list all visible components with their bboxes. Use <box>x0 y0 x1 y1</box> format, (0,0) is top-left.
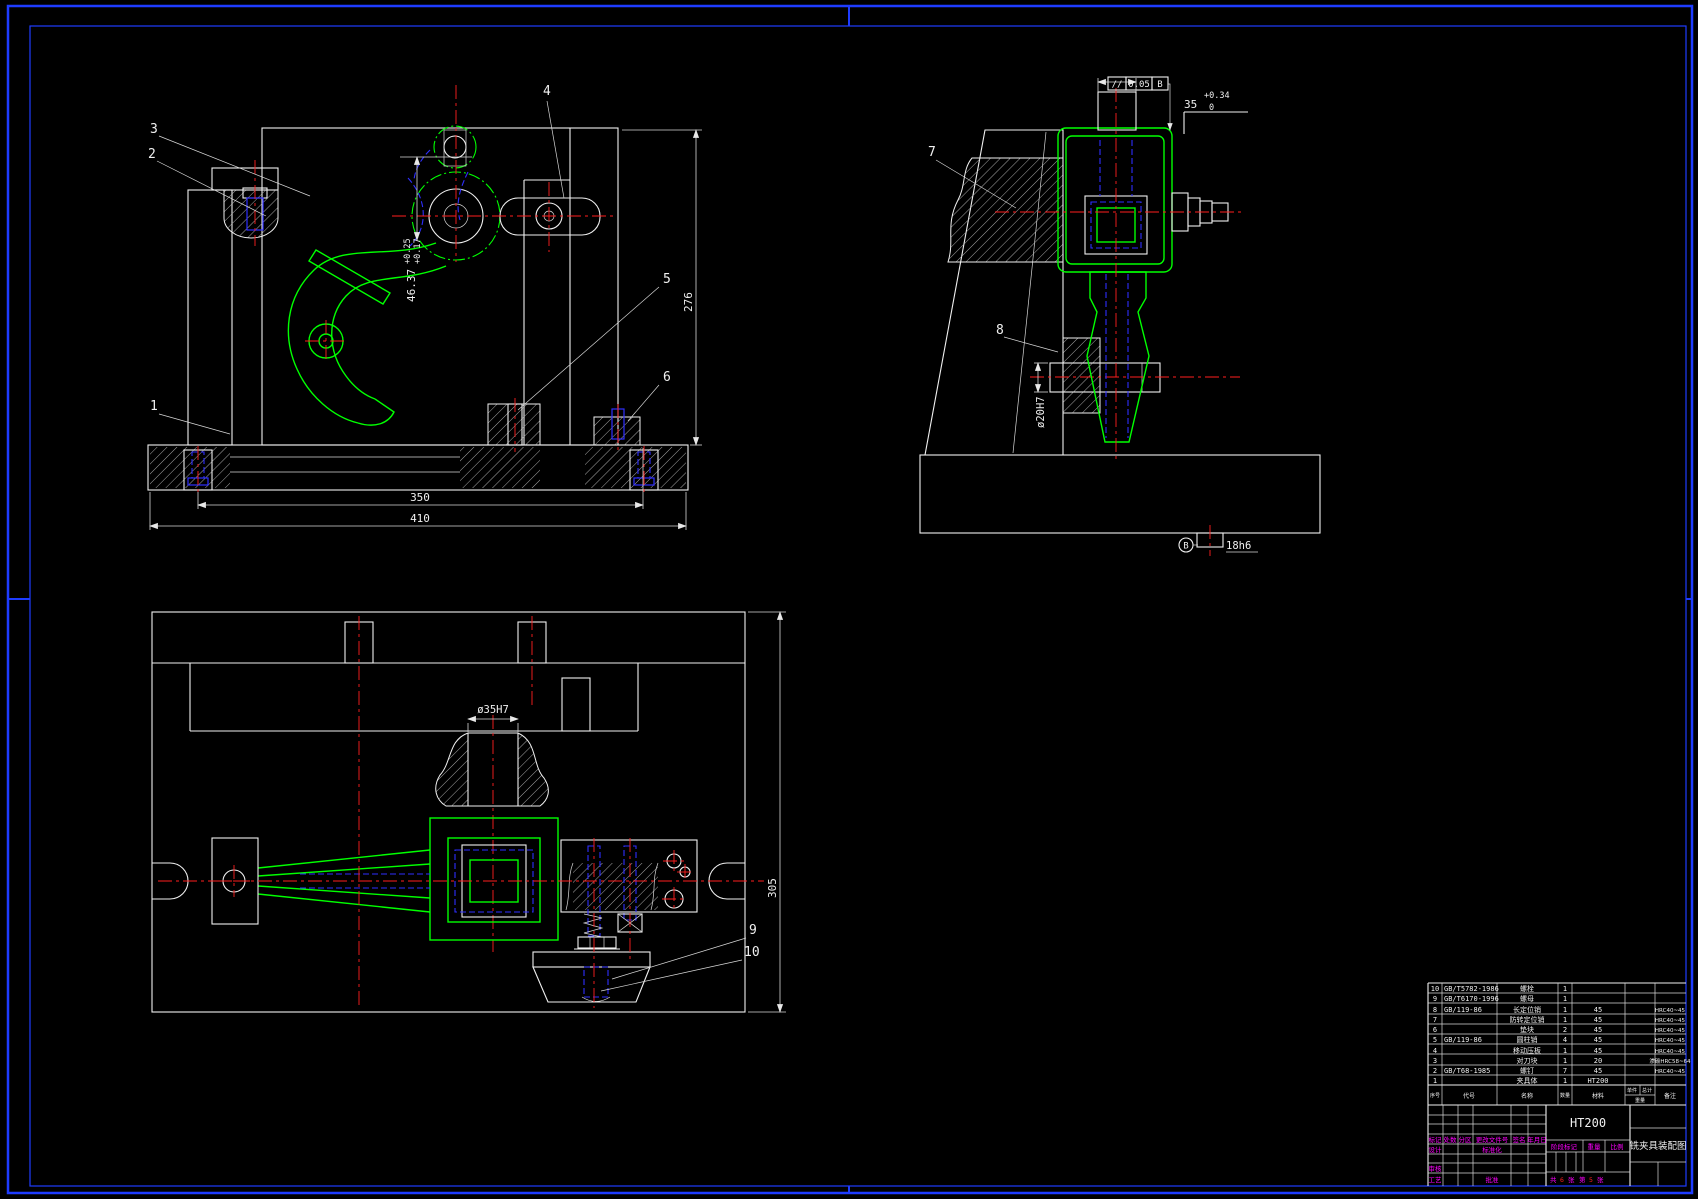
support-block-left <box>488 398 540 452</box>
part-no: 9 <box>1433 995 1437 1003</box>
part-no: 3 <box>1433 1057 1437 1065</box>
side-base <box>920 455 1320 556</box>
label-stage: 阶段标记 <box>1551 1142 1578 1151</box>
balloon-7: 7 <box>928 145 936 160</box>
col-wt-unit: 单件 <box>1627 1087 1637 1094</box>
parts-list: 序号 代号 名称 数量 材料 单件 总计 重量 备注 10GB/T5782-19… <box>1428 983 1691 1186</box>
balloon-1: 1 <box>150 399 158 414</box>
label-standard: 标准化 <box>1482 1145 1502 1154</box>
part-name: 长定位销 <box>1513 1005 1541 1014</box>
balloon-4: 4 <box>543 84 551 99</box>
balloon-8: 8 <box>996 323 1004 338</box>
part-row-8: 8GB/119-86长定位销145HRC40~45 <box>1433 1005 1686 1014</box>
part-name: 螺栓 <box>1520 984 1534 993</box>
clamp-assembly-plan <box>212 818 558 940</box>
sheet-unit-2: 张 <box>1597 1175 1604 1184</box>
cad-canvas: 46.37 +0.25 +0.17 276 350 410 3 2 <box>0 0 1698 1199</box>
tool-setting-block <box>188 160 278 445</box>
sheet-border-frame <box>8 6 1692 1193</box>
label-sign: 签名 <box>1513 1135 1526 1144</box>
part-row-9: 9GB/T6170-1996螺母1 <box>1433 994 1567 1003</box>
part-row-7: 7防转定位销145HRC40~45 <box>1433 1015 1686 1024</box>
col-code: 代号 <box>1463 1092 1475 1100</box>
dim-height-276: 276 <box>682 292 695 312</box>
label-approve: 批准 <box>1486 1175 1500 1184</box>
part-material: 45 <box>1594 1047 1602 1055</box>
part-name: 螺母 <box>1520 994 1534 1003</box>
engineering-drawing: 46.37 +0.25 +0.17 276 350 410 3 2 <box>0 0 1698 1199</box>
part-material: 45 <box>1594 1026 1602 1034</box>
side-view-annotations: // 0.05 B 35 +0.34 0 ø20H7 18h6 B <box>928 77 1258 552</box>
col-qty: 数量 <box>1560 1092 1570 1099</box>
part-code: GB/T5782-1986 <box>1444 985 1499 993</box>
dim-slot-lower-tol: 0 <box>1209 103 1214 113</box>
part-code: GB/T68-1985 <box>1444 1067 1490 1075</box>
part-remark: HRC40~45 <box>1655 1069 1686 1075</box>
part-qty: 1 <box>1563 1077 1567 1085</box>
part-qty: 4 <box>1563 1036 1567 1044</box>
part-no: 2 <box>1433 1067 1437 1075</box>
sheet-count: 共 6 张 第 5 张 <box>1550 1175 1604 1184</box>
plan-view: ø35H7 305 9 10 <box>152 612 786 1012</box>
part-row-2: 2GB/T68-1985螺钉745HRC40~45 <box>1433 1066 1686 1075</box>
col-wt-total: 总计 <box>1642 1087 1652 1094</box>
plan-base-outline <box>152 612 745 1012</box>
part-qty: 1 <box>1563 1016 1567 1024</box>
dim-depth-305: 305 <box>766 878 779 898</box>
dim-width-350: 350 <box>410 491 430 504</box>
part-qty: 7 <box>1563 1067 1567 1075</box>
part-row-1: 1夹具体1HT200 <box>1433 1076 1609 1085</box>
side-view: // 0.05 B 35 +0.34 0 ø20H7 18h6 B <box>920 77 1320 556</box>
part-qty: 2 <box>1563 1026 1567 1034</box>
dim-bore-upper-tol: +0.25 <box>403 238 413 264</box>
part-no: 4 <box>1433 1047 1437 1055</box>
sheet-unit-1: 张 <box>1568 1175 1575 1184</box>
balloon-9: 9 <box>749 923 757 938</box>
part-no: 1 <box>1433 1077 1437 1085</box>
side-column <box>925 130 1100 455</box>
dim-bore: 46.37 <box>405 269 418 302</box>
part-no: 5 <box>1433 1036 1437 1044</box>
col-remark: 备注 <box>1664 1092 1676 1100</box>
part-qty: 1 <box>1563 1047 1567 1055</box>
dim-width-410: 410 <box>410 512 430 525</box>
locating-pin <box>1030 363 1240 392</box>
part-material: 45 <box>1594 1016 1602 1024</box>
part-material: 45 <box>1594 1036 1602 1044</box>
part-name: 防转定位销 <box>1510 1015 1545 1024</box>
clamp-lever-assembly <box>288 85 615 425</box>
label-change-no: 更改文件号 <box>1476 1135 1509 1144</box>
front-view: 46.37 +0.25 +0.17 276 350 410 3 2 <box>148 84 702 530</box>
datum-b-symbol: B <box>1183 542 1188 552</box>
part-code: GB/T6170-1996 <box>1444 995 1499 1003</box>
dim-key-18h6: 18h6 <box>1226 540 1251 552</box>
part-remark: HRC40~45 <box>1655 1028 1686 1034</box>
part-name: 移动压板 <box>1513 1046 1541 1055</box>
col-name: 名称 <box>1521 1092 1533 1100</box>
balloon-2: 2 <box>148 147 156 162</box>
clamp-body-side <box>995 88 1248 462</box>
part-remark: HRC40~45 <box>1655 1018 1686 1024</box>
gdt-parallel-symbol: // <box>1112 80 1123 90</box>
sheet-total-count: 6 <box>1560 1176 1564 1184</box>
balloon-5: 5 <box>663 272 671 287</box>
part-code: GB/119-86 <box>1444 1006 1482 1014</box>
part-material: HT200 <box>1587 1077 1608 1085</box>
part-row-6: 6垫块245HRC40~45 <box>1433 1025 1686 1034</box>
sheet-label-page: 第 <box>1579 1175 1586 1184</box>
col-no: 序号 <box>1430 1092 1440 1099</box>
dim-bore-lower-tol: +0.17 <box>413 238 423 264</box>
part-name: 螺钉 <box>1520 1066 1534 1075</box>
label-zone: 分区 <box>1459 1135 1473 1144</box>
label-mark: 标记 <box>1429 1135 1443 1144</box>
part-no: 6 <box>1433 1026 1437 1034</box>
part-row-3: 3对刀块120渗碳HRC58~64 <box>1433 1056 1691 1065</box>
label-audit: 审核 <box>1429 1164 1443 1173</box>
sheet-page-number: 5 <box>1589 1176 1593 1184</box>
part-row-5: 5GB/119-86圆柱销445HRC40~45 <box>1433 1035 1686 1044</box>
title-block: HT200 铣夹具装配图 标记 处数 分区 更改文件号 签名 年月日 设计 标准… <box>1428 1105 1687 1186</box>
part-qty: 1 <box>1563 1057 1567 1065</box>
part-qty: 1 <box>1563 985 1567 993</box>
part-qty: 1 <box>1563 995 1567 1003</box>
col-material: 材料 <box>1592 1092 1604 1100</box>
parts-list-rows: 10GB/T5782-1986螺栓1 9GB/T6170-1996螺母1 8GB… <box>1431 984 1691 1085</box>
part-row-10: 10GB/T5782-1986螺栓1 <box>1431 984 1567 993</box>
label-scale: 比例 <box>1611 1142 1624 1151</box>
part-material: 20 <box>1594 1057 1602 1065</box>
part-material: 45 <box>1594 1067 1602 1075</box>
part-remark: 渗碳HRC58~64 <box>1649 1057 1691 1065</box>
support-block-right <box>594 404 640 452</box>
part-code: GB/119-86 <box>1444 1036 1482 1044</box>
dim-hole-35h7: ø35H7 <box>477 704 509 716</box>
balloon-10: 10 <box>744 945 760 960</box>
label-date: 年月日 <box>1527 1135 1547 1144</box>
material-spec: HT200 <box>1570 1116 1606 1130</box>
part-no: 10 <box>1431 985 1439 993</box>
label-weight: 重量 <box>1588 1143 1602 1151</box>
label-process: 工艺 <box>1429 1176 1443 1184</box>
part-no: 8 <box>1433 1006 1437 1014</box>
part-name: 对刀块 <box>1517 1056 1538 1065</box>
parts-list-header: 序号 代号 名称 数量 材料 单件 总计 重量 备注 <box>1430 1087 1676 1104</box>
dim-slot-35: 35 <box>1184 98 1197 111</box>
balloon-6: 6 <box>663 370 671 385</box>
dim-slot-upper-tol: +0.34 <box>1204 91 1230 101</box>
base-plate <box>148 445 688 494</box>
part-remark: HRC40~45 <box>1655 1008 1686 1014</box>
part-remark: HRC40~45 <box>1655 1049 1686 1055</box>
sheet-label-total: 共 <box>1550 1175 1557 1184</box>
balloon-3: 3 <box>150 122 158 137</box>
gdt-tolerance-value: 0.05 <box>1128 80 1150 90</box>
label-count: 处数 <box>1444 1135 1458 1144</box>
dim-pin-dia: ø20H7 <box>1035 396 1047 428</box>
part-name: 垫块 <box>1520 1025 1534 1034</box>
part-material: 45 <box>1594 1006 1602 1014</box>
col-weight: 重量 <box>1635 1097 1645 1104</box>
part-name: 圆柱销 <box>1517 1035 1538 1044</box>
part-qty: 1 <box>1563 1006 1567 1014</box>
part-no: 7 <box>1433 1016 1437 1024</box>
label-design: 设计 <box>1429 1145 1443 1154</box>
plan-centerlines <box>158 616 764 1008</box>
part-name: 夹具体 <box>1517 1076 1538 1085</box>
part-remark: HRC40~45 <box>1655 1038 1686 1044</box>
drawing-title: 铣夹具装配图 <box>1629 1140 1686 1152</box>
gdt-datum-ref: B <box>1157 80 1162 90</box>
